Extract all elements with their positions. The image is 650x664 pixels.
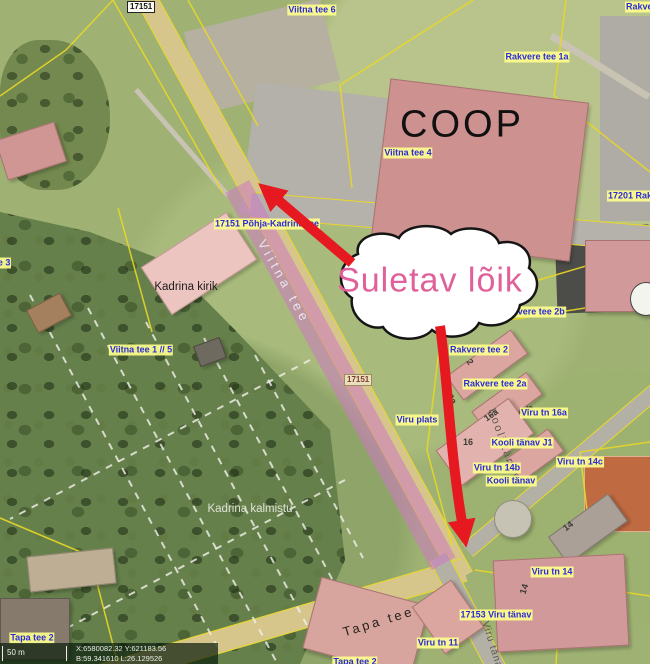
coordinate-bl: B:59.341610 L:26.129526: [76, 654, 166, 664]
scale-tick-start: [2, 646, 3, 661]
coordinate-xy: X:6580082.32 Y:621183.56: [76, 644, 166, 654]
scale-tick-end: [66, 646, 67, 661]
arrow-annotations: [0, 0, 650, 664]
map-view[interactable]: 1715117151Viitna teeTapa teeKooli tänavV…: [0, 0, 650, 664]
red-arrow-1: [278, 200, 352, 263]
map-layers: 1715117151Viitna teeTapa teeKooli tänavV…: [0, 0, 650, 664]
coordinate-readout: X:6580082.32 Y:621183.56 B:59.341610 L:2…: [76, 644, 166, 663]
scale-distance: 50 m: [7, 648, 25, 657]
red-arrow-2: [440, 326, 462, 522]
scale-bar: 50 m X:6580082.32 Y:621183.56 B:59.34161…: [0, 643, 218, 664]
